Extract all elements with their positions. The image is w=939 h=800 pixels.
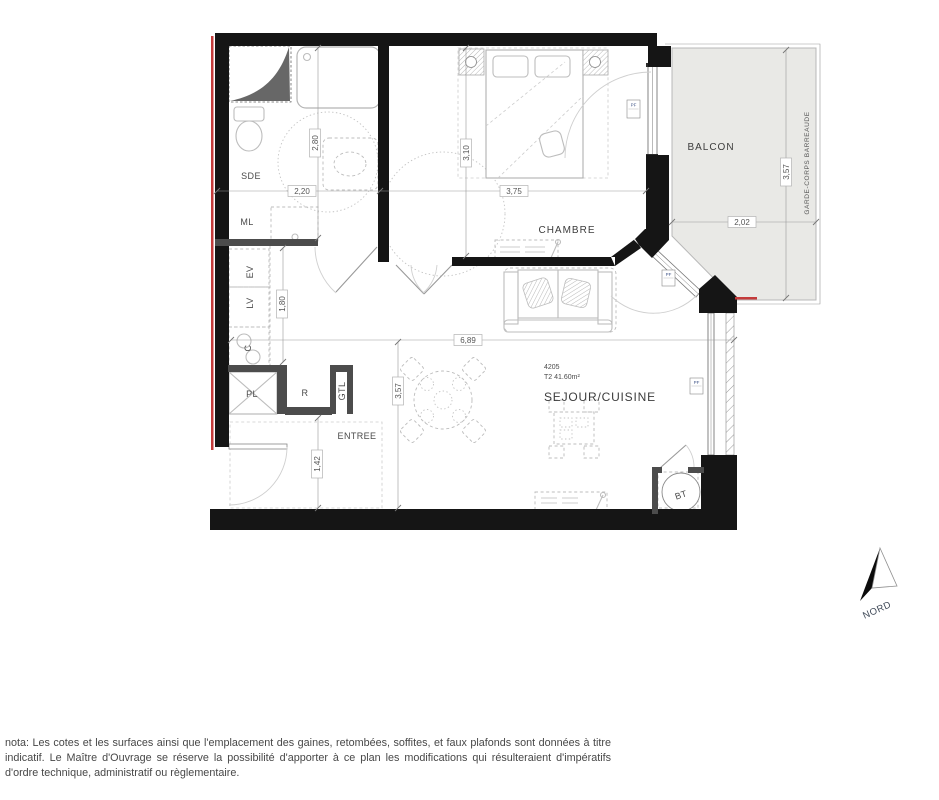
- window-tag: PF: [690, 378, 703, 394]
- dim-label-kitchen-run: 1,80: [277, 290, 288, 318]
- bedroom-door-leaves: [396, 265, 452, 294]
- svg-text:PF: PF: [631, 103, 637, 108]
- bedside-lamp: [466, 57, 477, 68]
- sejour-cuisine-label: SEJOUR/CUISINE: [544, 390, 656, 404]
- toilet-bowl: [236, 121, 262, 151]
- table-item: [560, 430, 572, 439]
- dim-label-bedroom-width: 3,75: [500, 186, 528, 197]
- shower-drain: [304, 54, 311, 61]
- sofa-back: [504, 320, 612, 332]
- washing-machine: [271, 207, 318, 243]
- console-drawers: [500, 247, 545, 252]
- svg-text:3,57: 3,57: [782, 164, 791, 180]
- pl-label: PL: [246, 389, 258, 399]
- dining-chair: [549, 446, 564, 458]
- balcony-label: BALCON: [687, 142, 734, 153]
- dim-label-living-depth: 3,57: [393, 377, 404, 405]
- window-tag: PF: [627, 100, 640, 118]
- entry-door-swing: [229, 447, 287, 505]
- shower-tray: [297, 47, 380, 108]
- sde-fixtures: [229, 46, 380, 243]
- round-dining-set: [399, 356, 486, 443]
- table-item: [560, 418, 572, 427]
- table-item: [576, 418, 588, 427]
- svg-text:GARDE-CORPS BARREAUDE: GARDE-CORPS BARREAUDE: [804, 111, 811, 214]
- plate: [453, 378, 466, 391]
- north-arrow: NORD: [860, 548, 897, 622]
- entry-door-leaf: [229, 444, 287, 449]
- svg-text:NORD: NORD: [861, 599, 893, 621]
- vanity-unit: [323, 138, 378, 190]
- svg-text:LV: LV: [245, 297, 255, 308]
- nota-disclaimer: nota: Les cotes et les surfaces ainsi qu…: [5, 736, 611, 782]
- svg-text:1,80: 1,80: [278, 296, 287, 312]
- table-centerpiece: [434, 391, 452, 409]
- entree-label: ENTREE: [338, 431, 377, 441]
- sofa-outline: [504, 268, 616, 332]
- ev-label: EV: [245, 266, 255, 279]
- sideboard-drawers: [541, 498, 578, 503]
- svg-text:3,57: 3,57: [394, 383, 403, 399]
- svg-text:2,20: 2,20: [294, 187, 310, 196]
- svg-text:2,02: 2,02: [734, 218, 750, 227]
- svg-text:GTL: GTL: [337, 382, 347, 401]
- north-arrow-outline: [872, 548, 897, 588]
- chambre-label: CHAMBRE: [538, 225, 595, 236]
- sofa-armrest: [598, 272, 612, 324]
- svg-text:EV: EV: [245, 266, 255, 279]
- unit-type-area: T2 41.60m²: [544, 374, 580, 381]
- doors-windows: [229, 63, 734, 505]
- living-balcony-door-midline: [654, 252, 699, 294]
- dining-chair: [584, 446, 599, 458]
- bt-door-leaf: [660, 445, 686, 468]
- sofa-armrest: [504, 272, 518, 324]
- balcony-rail-hatch: [726, 313, 734, 455]
- turning-circle-sde: [278, 112, 378, 212]
- balcony-railing-label: GARDE-CORPS BARREAUDE: [804, 111, 811, 214]
- svg-text:PF: PF: [694, 380, 700, 385]
- toilet-tank: [234, 107, 264, 121]
- balcony-area: BALCON GARDE-CORPS BARREAUDE: [665, 44, 820, 304]
- svg-text:2,80: 2,80: [311, 135, 320, 151]
- sde-label: SDE: [241, 171, 261, 181]
- bt-door-swing: [686, 445, 694, 468]
- sde-door-leaf: [336, 247, 377, 292]
- dim-label-entry-depth: 1,42: [312, 450, 323, 478]
- svg-text:3,75: 3,75: [506, 187, 522, 196]
- balcony-floor: [672, 48, 816, 300]
- dim-label-bedroom-depth: 3,10: [461, 139, 472, 167]
- living-balcony-door-swing: [611, 295, 697, 313]
- sde-door-swing: [315, 247, 336, 293]
- square-dining-set: [549, 400, 599, 458]
- floor-plan-drawing: BALCON GARDE-CORPS BARREAUDE: [0, 0, 939, 800]
- ml-label: ML: [240, 217, 253, 227]
- svg-text:6,89: 6,89: [460, 336, 476, 345]
- lv-label: LV: [245, 297, 255, 308]
- dim-label-balcony-depth: 3,57: [781, 158, 792, 186]
- svg-text:1,42: 1,42: [313, 456, 322, 472]
- dining-chair: [461, 418, 486, 443]
- dim-label-balcony-width: 2,02: [728, 217, 756, 228]
- north-label: NORD: [861, 599, 893, 621]
- sofa-cushion: [522, 277, 555, 310]
- svg-text:C: C: [243, 344, 253, 351]
- dining-chair: [399, 418, 424, 443]
- dim-label-sde-depth: 2,80: [310, 129, 321, 157]
- svg-text:PF: PF: [666, 272, 672, 277]
- exterior-walls: [210, 33, 737, 530]
- washbasin: [334, 152, 366, 176]
- gtl-label: GTL: [337, 382, 347, 401]
- floor-plan-page: BALCON GARDE-CORPS BARREAUDE: [0, 0, 939, 800]
- window-tag: PF: [662, 270, 675, 286]
- svg-text:3,10: 3,10: [462, 145, 471, 161]
- dining-chair: [461, 356, 486, 381]
- dim-label-sde-width: 2,20: [288, 186, 316, 197]
- bedside-lamp: [590, 57, 601, 68]
- c-label: C: [243, 344, 253, 351]
- square-table: [554, 412, 594, 444]
- r-label: R: [302, 388, 309, 398]
- unit-number: 4205: [544, 364, 560, 371]
- dim-label-living-width: 6,89: [454, 335, 482, 346]
- sofa-cushion: [560, 277, 591, 308]
- plate: [453, 410, 466, 423]
